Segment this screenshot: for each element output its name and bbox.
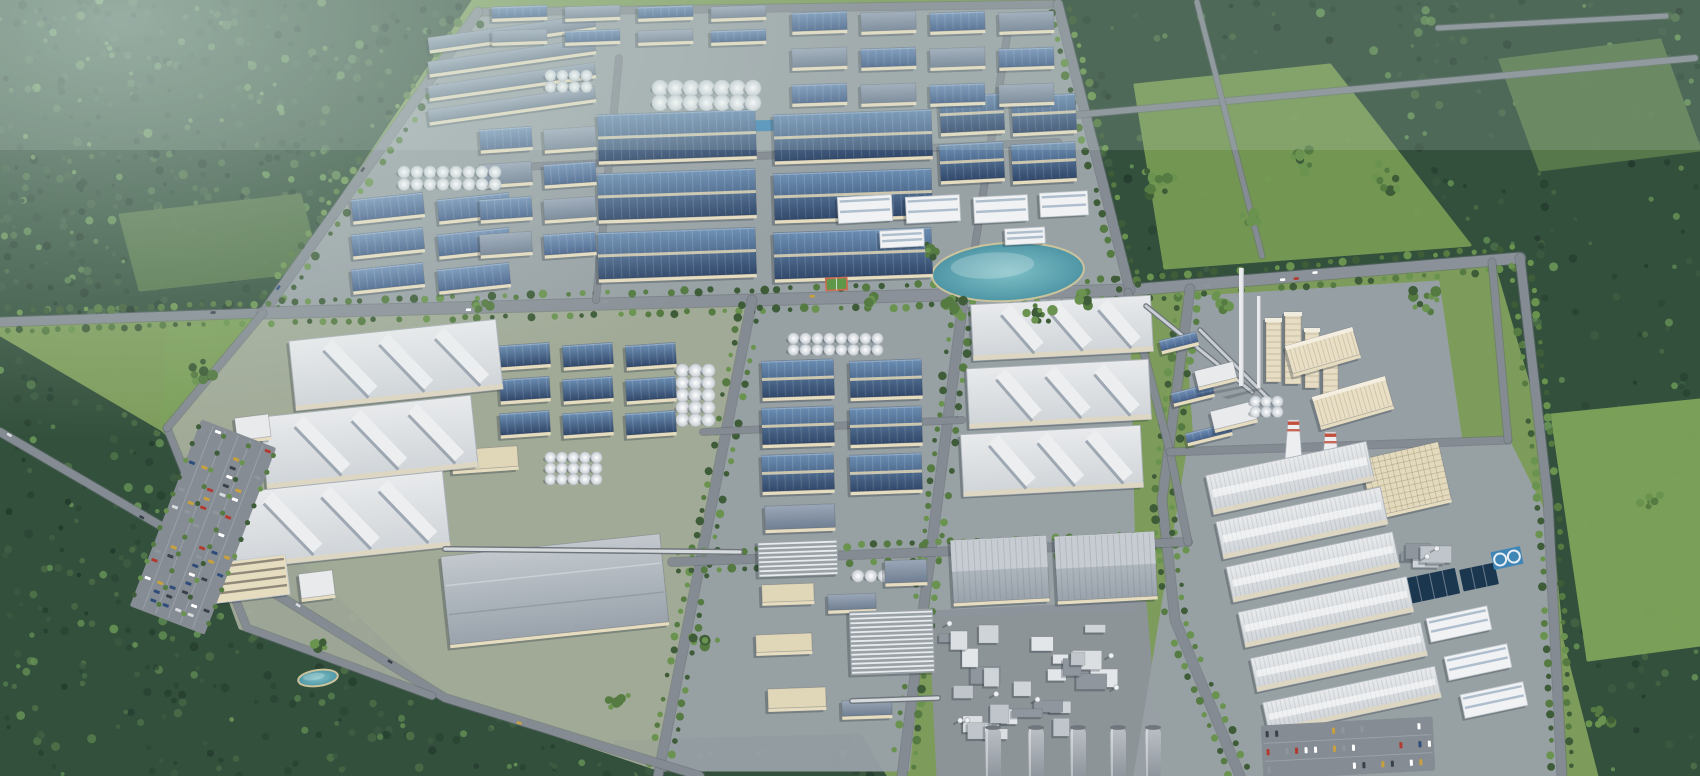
- storage-tank: [676, 401, 689, 414]
- midwest-halls-0-2: [622, 342, 677, 373]
- haze-top: [0, 0, 1700, 150]
- tree: [1162, 173, 1173, 184]
- tree: [864, 298, 874, 308]
- parked-car: [1419, 759, 1422, 765]
- east-grayshed-2: [1051, 531, 1158, 606]
- pipe-rack-plant: [852, 698, 938, 701]
- process-unit: [951, 631, 968, 650]
- tree: [1434, 297, 1439, 302]
- parked-car: [1418, 741, 1421, 747]
- tree: [958, 296, 968, 306]
- tree: [319, 639, 327, 647]
- tree: [1155, 175, 1163, 183]
- process-unit: [1076, 674, 1107, 690]
- storage-tank: [1272, 396, 1283, 407]
- parked-car: [1417, 723, 1420, 729]
- storage-tank: [800, 333, 811, 344]
- central-halls-0-0: [758, 359, 834, 404]
- central-halls-1-0: [758, 406, 834, 451]
- tree: [626, 693, 631, 698]
- central-beige-1: [759, 583, 815, 608]
- tree: [1239, 212, 1245, 218]
- storage-tank: [689, 389, 702, 402]
- industrial-park-aerial-rendering: [0, 0, 1700, 776]
- central-halls-1-1: [846, 406, 922, 451]
- tree: [1211, 293, 1219, 301]
- tree: [608, 704, 613, 709]
- storage-tank: [580, 452, 591, 463]
- storage-tank: [676, 376, 689, 389]
- storage-tank: [591, 463, 602, 474]
- small-stack: [965, 718, 970, 723]
- office-small-2: [1002, 227, 1046, 247]
- process-unit: [953, 686, 973, 699]
- storage-tank: [812, 344, 823, 355]
- basketball-court: [826, 277, 848, 290]
- tree: [1047, 305, 1057, 315]
- tree: [1144, 168, 1150, 174]
- parked-car: [1275, 731, 1278, 737]
- tree: [1022, 309, 1030, 317]
- central-beige-2: [753, 633, 813, 658]
- tree: [1380, 184, 1387, 191]
- tree: [310, 640, 319, 649]
- parked-car: [1428, 741, 1431, 747]
- central-hall-south: [762, 504, 836, 536]
- tree: [1291, 154, 1297, 160]
- east-warehouse-3: [958, 425, 1144, 498]
- process-unit: [1085, 625, 1106, 633]
- parked-car: [1341, 727, 1344, 733]
- storage-tank: [702, 413, 715, 426]
- storage-tank: [1261, 406, 1272, 417]
- tree: [1375, 160, 1383, 168]
- cement-silos: [1248, 396, 1283, 417]
- small-stack: [1035, 697, 1040, 702]
- parked-car: [1332, 728, 1335, 734]
- tree: [617, 694, 626, 703]
- tree: [1636, 499, 1644, 507]
- storage-tank: [788, 344, 799, 355]
- solar-rows-plant: [846, 609, 935, 678]
- parked-car: [1360, 726, 1363, 732]
- west-small-white: [295, 570, 335, 604]
- office-row-lakeside-0: [834, 195, 892, 226]
- silos-midwest: [543, 452, 602, 485]
- tree: [1033, 307, 1038, 312]
- tree: [1585, 720, 1592, 727]
- midwest-halls-2-2: [622, 410, 677, 441]
- pipe-rack-west: [445, 549, 740, 552]
- storage-tank: [557, 452, 568, 463]
- tree: [715, 638, 720, 643]
- east-grayshed-1: [947, 536, 1049, 609]
- office-row-lakeside-1: [902, 195, 960, 226]
- central-beige-3: [765, 687, 827, 714]
- storage-tank: [1272, 406, 1283, 417]
- tree: [925, 248, 930, 253]
- scene-canvas: [0, 0, 1700, 776]
- tree: [1595, 721, 1602, 728]
- storage-tank: [591, 474, 602, 485]
- midwest-halls-1-1: [559, 376, 614, 407]
- central-halls-2-1: [846, 453, 922, 498]
- parked-car: [1399, 742, 1402, 748]
- parked-car: [1391, 761, 1394, 767]
- parked-car: [1295, 748, 1298, 754]
- storage-tank: [676, 389, 689, 402]
- tree: [1607, 716, 1615, 724]
- tree: [1162, 188, 1168, 194]
- storage-tank: [545, 463, 556, 474]
- tree: [1384, 168, 1389, 173]
- tree: [1376, 178, 1383, 185]
- se-parking-lot: [1261, 717, 1436, 776]
- storage-tank: [800, 344, 811, 355]
- small-stack: [1425, 554, 1430, 559]
- midwest-halls-1-2: [622, 376, 677, 407]
- storage-tank: [865, 570, 877, 582]
- tree: [1600, 715, 1606, 721]
- process-unit: [979, 625, 999, 643]
- storage-tank: [702, 401, 715, 414]
- small-stack: [1434, 546, 1439, 551]
- process-unit: [1031, 637, 1053, 651]
- tree: [1221, 299, 1227, 305]
- parked-car: [1410, 760, 1413, 766]
- central-halls-0-1: [846, 359, 922, 404]
- storage-tank: [568, 452, 579, 463]
- parked-car: [1333, 746, 1336, 752]
- storage-tank: [836, 333, 847, 344]
- tree: [1430, 286, 1441, 297]
- storage-tank: [557, 474, 568, 485]
- parked-car: [1342, 745, 1345, 751]
- tree: [1591, 707, 1597, 713]
- storage-tank: [568, 463, 579, 474]
- storage-tank: [872, 344, 883, 355]
- tree: [1031, 316, 1038, 323]
- process-unit: [1014, 681, 1031, 696]
- storage-tank: [568, 474, 579, 485]
- tree: [1146, 184, 1156, 194]
- storage-tank: [824, 344, 835, 355]
- tree: [1307, 162, 1313, 168]
- tree: [957, 312, 966, 321]
- small-stack: [994, 691, 999, 696]
- storage-tank: [1250, 406, 1261, 417]
- east-warehouse-1: [968, 295, 1154, 362]
- tree: [1595, 712, 1601, 718]
- parked-car: [1362, 762, 1365, 768]
- storage-tank: [836, 344, 847, 355]
- tree: [949, 303, 960, 314]
- tree: [1422, 304, 1430, 312]
- tree: [702, 637, 708, 643]
- storage-tank: [860, 333, 871, 344]
- storage-tank: [860, 344, 871, 355]
- parked-car: [1353, 763, 1356, 769]
- storage-tank: [702, 376, 715, 389]
- small-stack: [1114, 685, 1119, 690]
- process-unit: [1071, 652, 1085, 665]
- tree: [1254, 218, 1262, 226]
- storage-tank: [676, 364, 689, 377]
- tree: [1656, 491, 1664, 499]
- parked-car: [1352, 745, 1355, 751]
- tree: [1296, 153, 1304, 161]
- parked-car: [1381, 761, 1384, 767]
- central-halls-2-0: [758, 453, 834, 498]
- banded-stack-1-shell: [1285, 420, 1302, 460]
- midwest-halls-2-0: [496, 410, 551, 441]
- tree: [1393, 185, 1400, 192]
- storage-tank: [580, 463, 591, 474]
- se-parking-lot-asphalt: [1261, 717, 1436, 776]
- preheater-tower-1: [1263, 318, 1282, 384]
- parked-car: [1304, 747, 1307, 753]
- storage-tank: [689, 364, 702, 377]
- parked-car: [1285, 748, 1288, 754]
- parked-car: [1267, 767, 1270, 773]
- storage-tank: [812, 333, 823, 344]
- storage-tank: [545, 474, 556, 485]
- tree: [1075, 295, 1084, 304]
- tree: [1046, 319, 1051, 324]
- parked-car: [1266, 749, 1269, 755]
- storage-tank: [689, 376, 702, 389]
- tree: [1417, 301, 1423, 307]
- plant-office-west: [882, 559, 928, 589]
- storage-tank: [676, 413, 689, 426]
- parked-car: [1266, 731, 1269, 737]
- tree: [1033, 303, 1038, 308]
- storage-tank: [702, 364, 715, 377]
- east-warehouse-2: [964, 359, 1152, 431]
- tree: [1392, 175, 1400, 183]
- tree: [1651, 498, 1659, 506]
- storage-tank: [852, 570, 864, 582]
- tree: [1408, 286, 1418, 296]
- storage-tank: [788, 333, 799, 344]
- tree: [1224, 305, 1229, 310]
- process-unit: [990, 704, 1009, 723]
- silo-group-central: [674, 364, 715, 426]
- tree: [689, 634, 698, 643]
- storage-tank: [580, 474, 591, 485]
- small-stack: [947, 621, 952, 626]
- tree: [1037, 308, 1042, 313]
- process-unit: [1012, 709, 1043, 717]
- office-small-1: [877, 229, 925, 250]
- office-row-lakeside-2: [970, 195, 1028, 226]
- storage-tank: [689, 413, 702, 426]
- storage-tank: [872, 333, 883, 344]
- storage-tank: [824, 333, 835, 344]
- greenhouse-rows: [754, 539, 838, 580]
- storage-tank: [1250, 396, 1261, 407]
- midwest-halls-2-1: [559, 410, 614, 441]
- tree: [1413, 305, 1418, 310]
- office-lakeside-e: [1036, 191, 1088, 220]
- storage-tank: [848, 333, 859, 344]
- storage-tank: [848, 344, 859, 355]
- storage-tank: [1261, 396, 1272, 407]
- storage-tank: [689, 401, 702, 414]
- process-unit: [984, 668, 999, 687]
- parked-car: [1314, 747, 1317, 753]
- storage-tank: [702, 389, 715, 402]
- process-unit: [1053, 718, 1069, 736]
- storage-tank: [557, 463, 568, 474]
- storage-tank: [591, 452, 602, 463]
- storage-tank: [545, 452, 556, 463]
- small-stack: [1109, 653, 1114, 658]
